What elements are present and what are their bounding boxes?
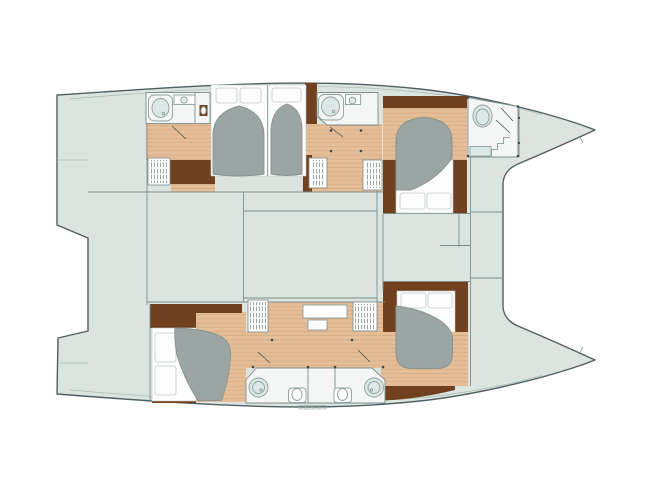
pillow: [272, 88, 301, 102]
bed-duvet-port-mid: [271, 104, 302, 176]
locker-louver: [355, 304, 375, 329]
door-post-dot: [330, 129, 333, 132]
port-aft-bathroom: [146, 93, 210, 124]
door-post-dot: [467, 96, 470, 99]
bedframe-stbd-fwd-left: [383, 291, 397, 332]
sink-icon: [349, 97, 356, 104]
shower-basin-icon: [365, 378, 384, 397]
wood-floor-port-aft-strip: [171, 184, 215, 192]
door-post-dot: [518, 117, 520, 119]
cabinet-port-aft: [170, 160, 215, 184]
shower-basin-icon: [322, 97, 340, 116]
pillow: [427, 193, 451, 209]
headboard-stbd-fwd: [383, 282, 468, 291]
door-post-dot: [517, 105, 520, 108]
pillow: [428, 293, 452, 308]
pillow: [401, 293, 426, 308]
steps-stbd-aft: [248, 300, 268, 332]
shower-basin-icon: [249, 378, 268, 397]
steps-louver: [250, 302, 266, 330]
bedframe-port-fwd-left: [383, 160, 397, 214]
port-mid-bathroom: [317, 93, 378, 126]
door-post-dot: [330, 150, 333, 153]
steps-louver: [365, 162, 380, 188]
door-post-dot: [467, 155, 470, 158]
locker-stbd-fwd: [353, 302, 377, 331]
desk-stool-icon: [308, 320, 327, 330]
shower-basin-icon: [152, 99, 169, 118]
sink-icon: [181, 97, 187, 103]
door-post-dot: [252, 366, 255, 369]
headboard-port-fwd: [383, 96, 467, 108]
pillow: [400, 193, 425, 209]
bed-duvet-port-aft: [213, 106, 264, 176]
steps-port-aft: [148, 158, 170, 185]
desk-icon: [303, 305, 347, 318]
door-post-dot: [307, 366, 310, 369]
pillow: [240, 88, 261, 103]
door-post-dot: [518, 142, 520, 144]
stbd-bathrooms: [246, 368, 385, 403]
floor-plan-svg: [0, 0, 650, 490]
wood-floor-port-aft: [146, 123, 215, 160]
port-fwd-bathroom: [468, 98, 518, 158]
door-post-dot: [360, 129, 363, 132]
door-post-dot: [382, 366, 385, 369]
pillow: [155, 333, 176, 362]
door-post-dot: [351, 339, 354, 342]
door-post-dot: [334, 366, 337, 369]
steps-louver: [311, 160, 325, 186]
bedframe-port-fwd-right: [453, 160, 467, 214]
door-post-dot: [271, 339, 274, 342]
door-post-dot: [360, 150, 363, 153]
wardrobe-port-mid-upper: [305, 83, 317, 124]
steps-louver: [150, 160, 168, 183]
catamaran-deck-plan: [0, 0, 650, 490]
bath-counter-icon: [470, 147, 491, 157]
toilet-icon: [201, 107, 206, 115]
steps-port-mid-right: [363, 160, 382, 190]
steps-port-mid-left: [309, 158, 327, 188]
bedframe-stbd-fwd-right: [455, 291, 468, 332]
pillow: [155, 366, 176, 395]
pillow: [216, 88, 237, 103]
door-post-dot: [517, 155, 520, 158]
